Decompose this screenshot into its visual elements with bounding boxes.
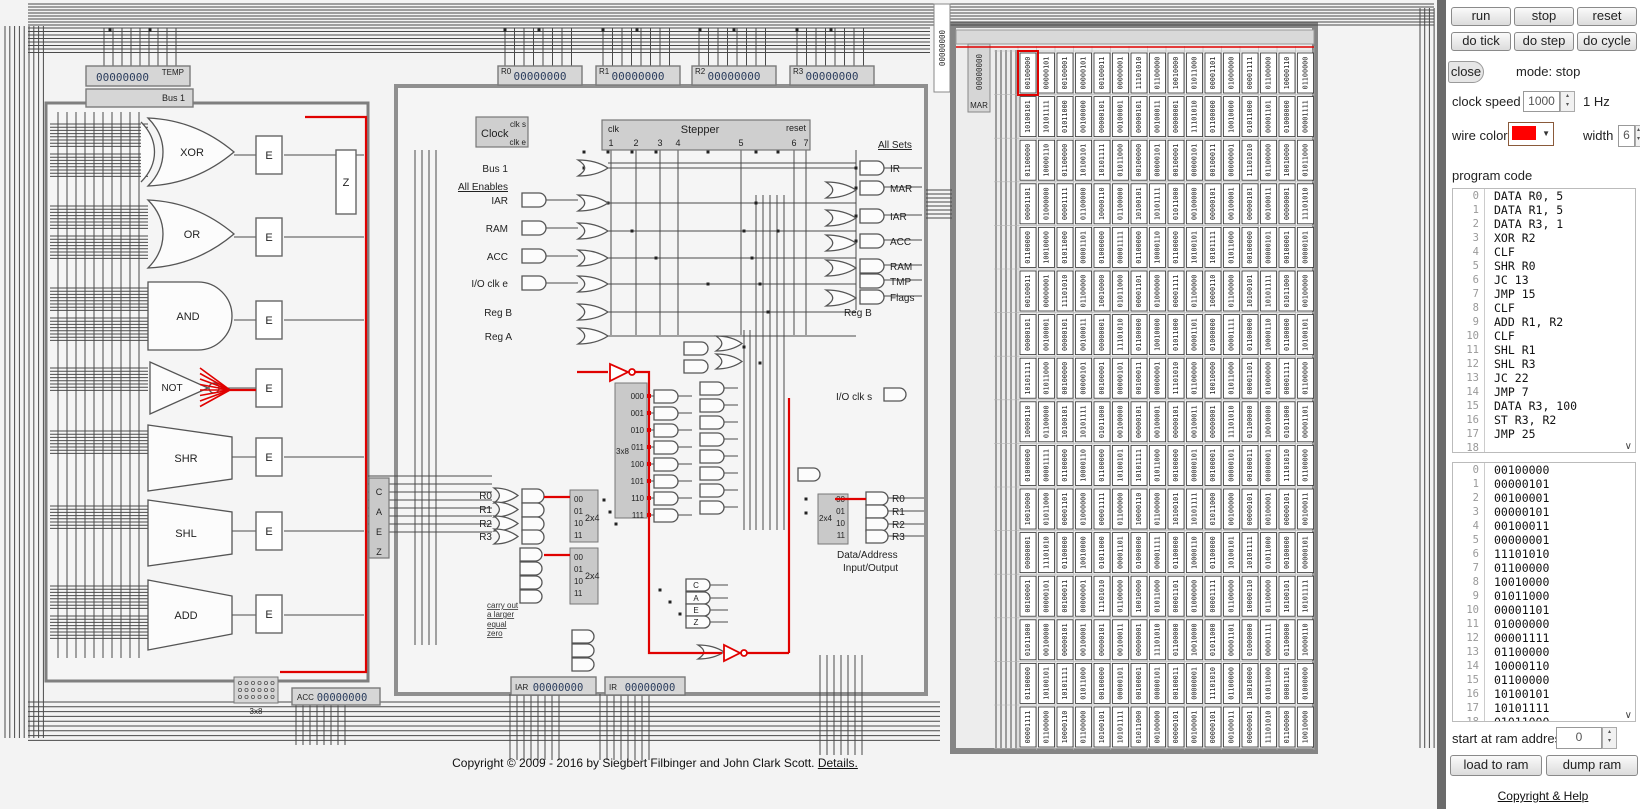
svg-text:01011000: 01011000 (1246, 100, 1254, 133)
ram-cell[interactable]: 01100000 (1076, 184, 1092, 224)
ram-cell[interactable]: 00001111 (1020, 707, 1036, 747)
ram-cell[interactable]: 11101010 (1150, 620, 1166, 660)
ram-cell[interactable]: 00000001 (1187, 663, 1203, 703)
ram-cell[interactable]: 01000000 (1020, 445, 1036, 485)
ram-cell[interactable]: 00000001 (1279, 184, 1295, 224)
ram-cell[interactable]: 00100001 (1150, 402, 1166, 442)
ram-cell[interactable]: 00000101 (1242, 184, 1258, 224)
ram-cell[interactable]: 01000000 (1076, 489, 1092, 529)
panel-divider[interactable] (1437, 0, 1446, 809)
svg-text:00000101: 00000101 (1191, 449, 1199, 482)
ram-cell[interactable]: 01100000 (1279, 315, 1295, 355)
ram-cell[interactable]: 00000101 (1298, 533, 1314, 573)
svg-text:00100001: 00100001 (1172, 144, 1180, 177)
ram-cell[interactable]: 10010000 (1020, 489, 1036, 529)
ram-cell[interactable]: 00001101 (1020, 184, 1036, 224)
ram-cell[interactable]: 00001111 (1242, 53, 1258, 93)
ram-cell[interactable]: 00000001 (1150, 358, 1166, 398)
ram-cell[interactable]: 00000101 (1039, 576, 1055, 616)
ram-cell[interactable]: 01100000 (1261, 53, 1277, 93)
ram-cell[interactable]: 00000101 (1168, 402, 1184, 442)
ram-cell[interactable]: 10010000 (1261, 402, 1277, 442)
ram-cell[interactable]: 01100000 (1020, 663, 1036, 703)
ram-cell[interactable]: 01100000 (1020, 140, 1036, 180)
ram-cell[interactable]: 00100001 (1039, 315, 1055, 355)
ram-cell[interactable]: 10101111 (1205, 227, 1221, 267)
ram-cell[interactable]: 10101111 (1298, 576, 1314, 616)
ram-cell[interactable]: 00000101 (1150, 140, 1166, 180)
ram-cell[interactable]: 10100101 (1279, 576, 1295, 616)
ram-cell[interactable]: 01100000 (1298, 358, 1314, 398)
ram-cell[interactable]: 10010000 (1224, 97, 1240, 137)
load-to-ram-button[interactable]: load to ram (1450, 755, 1542, 776)
ram-cell[interactable]: 10100101 (1298, 315, 1314, 355)
ram-cell[interactable]: 10101111 (1057, 663, 1073, 703)
ram-cell[interactable]: 01100000 (1224, 663, 1240, 703)
ram-cell[interactable]: 00000101 (1094, 97, 1110, 137)
ram-cell[interactable]: 00000101 (1094, 620, 1110, 660)
ram-cell[interactable]: 00100000 (1113, 402, 1129, 442)
line-number: 3 (1453, 505, 1485, 519)
ram-cell[interactable]: 00100011 (1168, 663, 1184, 703)
ram-cell[interactable]: 00100000 (1298, 271, 1314, 311)
ram-cell[interactable]: 00001111 (1057, 184, 1073, 224)
ram-cell[interactable]: 00100001 (1205, 445, 1221, 485)
ram-cell[interactable]: 01000000 (1131, 533, 1147, 573)
ram-cell[interactable]: 01100000 (1168, 620, 1184, 660)
ram-cell[interactable]: 11101010 (1168, 358, 1184, 398)
ram-cell[interactable]: 00100000 (1187, 184, 1203, 224)
ram-cell[interactable]: 11101010 (1094, 576, 1110, 616)
start-address-spinner[interactable]: ▴▾ (1602, 727, 1617, 749)
ram-cell[interactable]: 00001101 (1187, 315, 1203, 355)
ram-cell[interactable]: 00100011 (1094, 53, 1110, 93)
ram-cell[interactable]: 01100000 (1187, 271, 1203, 311)
ram-cell[interactable]: 01100000 (1168, 227, 1184, 267)
ram-cell[interactable]: 00100001 (1113, 97, 1129, 137)
decoder-3x8-label: 3x8 (616, 447, 629, 456)
ram-cell[interactable]: 00000101 (1242, 489, 1258, 529)
ram-cell[interactable]: 01100000 (1205, 533, 1221, 573)
ram-cell[interactable]: 00000001 (1113, 53, 1129, 93)
ram-scroll-down-icon[interactable]: ∨ (1625, 710, 1632, 721)
ram-cell[interactable]: 01011000 (1039, 489, 1055, 529)
ram-cell[interactable]: 10000110 (1150, 227, 1166, 267)
ram-cell[interactable]: 00100000 (1131, 140, 1147, 180)
svg-text:01100000: 01100000 (1265, 144, 1273, 177)
ram-cell[interactable]: 00100001 (1131, 663, 1147, 703)
ram-cell[interactable]: 00100011 (1187, 402, 1203, 442)
ram-cell[interactable]: 00000101 (1150, 663, 1166, 703)
ram-cell[interactable]: 01100000 (1057, 140, 1073, 180)
ram-cell[interactable]: 00100001 (1094, 358, 1110, 398)
program-scroll-down-icon[interactable]: ∨ (1625, 441, 1632, 452)
ram-cell[interactable]: 10000110 (1094, 184, 1110, 224)
ram-cell[interactable]: 01100000 (1057, 533, 1073, 573)
ram-cell[interactable]: 01100000 (1150, 489, 1166, 529)
ram-cell[interactable]: 00000101 (1057, 620, 1073, 660)
ram-cell[interactable]: 10010000 (1076, 533, 1092, 573)
ram-cell[interactable]: 10000110 (1076, 445, 1092, 485)
ram-cell[interactable]: 10000110 (1261, 315, 1277, 355)
do-cycle-button[interactable]: do cycle (1577, 32, 1637, 51)
do-step-button[interactable]: do step (1514, 32, 1574, 51)
ram-cell[interactable]: 00001111 (1224, 315, 1240, 355)
ram-cell[interactable]: 00100011 (1113, 620, 1129, 660)
ram-cell[interactable]: 01100000 (1094, 445, 1110, 485)
ram-cell[interactable]: 01100000 (1113, 489, 1129, 529)
reset-button[interactable]: reset (1577, 7, 1637, 26)
ram-cell[interactable]: 00000001 (1205, 402, 1221, 442)
ram-cell[interactable]: 00100001 (1168, 140, 1184, 180)
ram-cell[interactable]: 00001111 (1205, 576, 1221, 616)
ram-cell[interactable]: 10000110 (1298, 620, 1314, 660)
ram-cell[interactable]: 00001111 (1113, 227, 1129, 267)
ram-cell[interactable]: 01011000 (1205, 620, 1221, 660)
ram-cell[interactable]: 11101010 (1261, 707, 1277, 747)
ram-cell[interactable]: 01011000 (1224, 227, 1240, 267)
ram-cell[interactable]: 01011000 (1094, 402, 1110, 442)
ram-cell[interactable]: 10000110 (1187, 533, 1203, 573)
ram-cell[interactable]: 00000101 (1279, 489, 1295, 529)
ram-cell[interactable]: 00000001 (1242, 707, 1258, 747)
ram-cell[interactable]: 01100000 (1076, 271, 1092, 311)
ram-cell[interactable]: 01011000 (1279, 271, 1295, 311)
ram-cell[interactable]: 00100011 (1076, 315, 1092, 355)
ram-cell[interactable]: 10000110 (1205, 271, 1221, 311)
ram-cell[interactable]: 00100001 (1076, 620, 1092, 660)
ram-cell[interactable]: 00100000 (1039, 620, 1055, 660)
wire-color-select[interactable]: ▼ (1508, 122, 1554, 146)
ram-cell[interactable]: 10010000 (1205, 358, 1221, 398)
ram-cell[interactable]: 10000110 (1242, 576, 1258, 616)
ram-cell[interactable]: 01000000 (1187, 576, 1203, 616)
ram-cell[interactable]: 01100000 (1131, 227, 1147, 267)
ram-cell[interactable]: 00000101 (1076, 53, 1092, 93)
ram-cell[interactable]: 00100001 (1279, 227, 1295, 267)
ram-cell[interactable]: 01000000 (1094, 227, 1110, 267)
ram-row: 000100000 (1453, 463, 1635, 477)
program-code-label: program code (1452, 168, 1532, 183)
ram-cell[interactable]: 10000110 (1020, 402, 1036, 442)
ram-cell[interactable]: 00100011 (1150, 97, 1166, 137)
ram-cell[interactable]: 10100101 (1187, 227, 1203, 267)
ram-cell[interactable]: 00000101 (1076, 358, 1092, 398)
ram-cell[interactable]: 10101111 (1113, 707, 1129, 747)
ram-cell[interactable]: 01100000 (1298, 53, 1314, 93)
ram-cell[interactable]: 01011000 (1168, 184, 1184, 224)
ram-cell[interactable]: 10101111 (1020, 358, 1036, 398)
ram-cell[interactable]: 00100000 (1150, 707, 1166, 747)
ram-cell[interactable]: 10100101 (1131, 184, 1147, 224)
ram-cell[interactable]: 10101111 (1076, 402, 1092, 442)
ram-cell[interactable]: 00000101 (1205, 184, 1221, 224)
ram-cell[interactable]: 00100011 (1261, 184, 1277, 224)
ram-cell[interactable]: 10100101 (1020, 97, 1036, 137)
ram-cell[interactable]: 01000000 (1261, 358, 1277, 398)
ram-cell[interactable]: 01100000 (1039, 402, 1055, 442)
ram-cell[interactable]: 01100000 (1168, 533, 1184, 573)
ram-cell[interactable]: 00001111 (1039, 445, 1055, 485)
ram-cell[interactable]: 01011000 (1113, 271, 1129, 311)
ram-cell[interactable]: 00000001 (1020, 533, 1036, 573)
ram-cell[interactable]: 11101010 (1279, 445, 1295, 485)
ram-cell[interactable]: 10010000 (1279, 140, 1295, 180)
ram-cell[interactable]: 00100001 (1020, 576, 1036, 616)
do-tick-button[interactable]: do tick (1451, 32, 1511, 51)
ram-cell[interactable]: 00000001 (1168, 97, 1184, 137)
ram-cell[interactable]: 00100000 (1168, 445, 1184, 485)
ram-cell[interactable]: 00001111 (1150, 533, 1166, 573)
ram-cell[interactable]: 01100000 (1224, 576, 1240, 616)
ram-cell[interactable]: 01000000 (1242, 620, 1258, 660)
ram-cell[interactable]: 01011000 (1020, 620, 1036, 660)
flags-register: CAEZ (369, 478, 389, 558)
ram-cell[interactable]: 10010000 (1242, 663, 1258, 703)
wire-width-spinner[interactable]: ▴▾ (1635, 125, 1640, 147)
svg-text:10000110: 10000110 (1135, 493, 1143, 526)
ram-cell[interactable]: 10101111 (1039, 97, 1055, 137)
ram-cell[interactable]: 01100000 (1279, 707, 1295, 747)
ram-cell[interactable]: 01011000 (1150, 445, 1166, 485)
ram-cell[interactable]: 00000001 (1224, 140, 1240, 180)
ram-cell[interactable]: 00100000 (1057, 358, 1073, 398)
svg-text:00000001: 00000001 (1024, 536, 1032, 569)
ram-cell[interactable]: 10101111 (1242, 533, 1258, 573)
ram-cell[interactable]: 11101010 (1039, 533, 1055, 573)
ram-cell[interactable]: 00100011 (1224, 707, 1240, 747)
ram-cell[interactable]: 10100101 (1039, 663, 1055, 703)
ram-cell[interactable]: 10100101 (1224, 533, 1240, 573)
ram-cell[interactable]: 01011000 (1168, 315, 1184, 355)
ram-cell[interactable]: 00001101 (1131, 271, 1147, 311)
ram-cell[interactable]: 00100011 (1242, 445, 1258, 485)
ram-cell[interactable]: 01100000 (1113, 576, 1129, 616)
ram-cell[interactable]: 00001101 (1205, 53, 1221, 93)
ram-cell[interactable]: 00100000 (1094, 663, 1110, 703)
ram-cell[interactable]: 00001101 (1261, 97, 1277, 137)
ram-cell[interactable]: 01100000 (1150, 53, 1166, 93)
ram-cell[interactable]: 00000101 (1224, 445, 1240, 485)
ram-cell[interactable]: 01100000 (1224, 271, 1240, 311)
ram-cell[interactable]: 10101111 (1187, 489, 1203, 529)
ram-cell[interactable]: 00000101 (1168, 707, 1184, 747)
ram-cell[interactable]: 00000101 (1187, 140, 1203, 180)
details-link[interactable]: Details. (818, 756, 858, 770)
ram-cell[interactable]: 01011000 (1205, 489, 1221, 529)
ram-cell[interactable]: 00100001 (1187, 707, 1203, 747)
ram-cell[interactable]: 00000101 (1131, 97, 1147, 137)
ram-cell[interactable]: 00001111 (1168, 271, 1184, 311)
ram-cell[interactable]: 00100001 (1224, 184, 1240, 224)
ram-cell[interactable]: 00100011 (1205, 140, 1221, 180)
ram-cell[interactable]: 01100000 (1076, 707, 1092, 747)
ram-cell[interactable]: 10010000 (1150, 315, 1166, 355)
ram-cell[interactable]: 01100000 (1113, 184, 1129, 224)
ram-cell[interactable]: 00100011 (1298, 489, 1314, 529)
ram-cell[interactable]: 01100000 (1057, 445, 1073, 485)
ram-cell[interactable]: 00100001 (1057, 53, 1073, 93)
ram-cell[interactable]: 01100000 (1279, 620, 1295, 660)
ram-cell[interactable]: 01000000 (1279, 97, 1295, 137)
ram-cell[interactable]: 00100011 (1131, 358, 1147, 398)
ram-cell[interactable]: 01011000 (1057, 97, 1073, 137)
ram-cell[interactable]: 01011000 (1298, 140, 1314, 180)
ram-cell[interactable]: 00100000 (1279, 533, 1295, 573)
ram-cell[interactable]: 01011000 (1113, 140, 1129, 180)
ram-cell[interactable]: 00000101 (1039, 53, 1055, 93)
ram-cell[interactable]: 10100101 (1094, 707, 1110, 747)
ram-cell[interactable]: 01100000 (1242, 402, 1258, 442)
dump-ram-button[interactable]: dump ram (1546, 755, 1638, 776)
ram-cell[interactable]: 01100000 (1020, 227, 1036, 267)
ram-cell[interactable]: 10010000 (1298, 707, 1314, 747)
ram-cell[interactable]: 01100000 (1261, 140, 1277, 180)
ram-cell[interactable]: 11101010 (1131, 53, 1147, 93)
svg-text:00001101: 00001101 (1061, 493, 1069, 526)
clock-speed-spinner[interactable]: ▴▾ (1560, 91, 1575, 112)
svg-text:01000000: 01000000 (1209, 318, 1217, 351)
svg-text:10010000: 10010000 (1228, 100, 1236, 133)
ram-cell[interactable]: 01011000 (1094, 533, 1110, 573)
ram-cell[interactable]: 00001101 (1298, 402, 1314, 442)
ram-cell[interactable]: 11101010 (1298, 184, 1314, 224)
ram-cell[interactable]: 00100000 (1020, 53, 1036, 93)
ram-cell[interactable]: 00100000 (1224, 489, 1240, 529)
ram-cell[interactable]: 01100000 (1205, 97, 1221, 137)
ram-cell[interactable]: 00000101 (1205, 707, 1221, 747)
ram-cell[interactable]: 00001101 (1076, 227, 1092, 267)
ram-cell[interactable]: 01011000 (1057, 227, 1073, 267)
ram-cell[interactable]: 10000110 (1279, 53, 1295, 93)
ram-cell[interactable]: 01000000 (1150, 271, 1166, 311)
ram-cell[interactable]: 10010000 (1131, 576, 1147, 616)
ram-cell[interactable]: 10010000 (1187, 620, 1203, 660)
ram-cell[interactable]: 11101010 (1187, 97, 1203, 137)
ram-cell[interactable]: 01011000 (1261, 663, 1277, 703)
ram-cell[interactable]: 00000001 (1131, 620, 1147, 660)
ram-cell[interactable]: 11101010 (1224, 402, 1240, 442)
ram-cell[interactable]: 10100101 (1113, 445, 1129, 485)
ram-cell[interactable]: 01011000 (1224, 358, 1240, 398)
ram-cell[interactable]: 01100000 (1039, 707, 1055, 747)
ram-cell[interactable]: 10010000 (1039, 227, 1055, 267)
ram-cell[interactable]: 01011000 (1131, 707, 1147, 747)
ram-cell[interactable]: 00001111 (1094, 489, 1110, 529)
ram-cell[interactable]: 00000101 (1057, 315, 1073, 355)
run-button[interactable]: run (1451, 7, 1511, 26)
ram-cell[interactable]: 00000101 (1113, 663, 1129, 703)
ram-cell[interactable]: 11101010 (1205, 663, 1221, 703)
ram-cell[interactable]: 10101111 (1261, 271, 1277, 311)
ram-cell[interactable]: 10100101 (1076, 140, 1092, 180)
ram-cell[interactable]: 00000001 (1076, 576, 1092, 616)
clock-speed-input[interactable]: 1000 (1523, 91, 1560, 112)
ram-cell[interactable]: 10000110 (1131, 489, 1147, 529)
svg-text:10000110: 10000110 (1302, 623, 1310, 656)
ram-cell[interactable]: 00100001 (1261, 489, 1277, 529)
ram-cell[interactable]: 01100000 (1187, 358, 1203, 398)
ram-cell[interactable]: 00000101 (1298, 227, 1314, 267)
ram-cell[interactable]: 10010000 (1168, 53, 1184, 93)
ram-cell[interactable]: 10101111 (1131, 445, 1147, 485)
ram-cell[interactable]: 10000110 (1057, 707, 1073, 747)
r0-value: 00000000 (514, 70, 567, 83)
ram-cell[interactable]: 10101111 (1094, 140, 1110, 180)
ram-cell[interactable]: 00000001 (1039, 271, 1055, 311)
ram-cell[interactable]: 00000001 (1261, 445, 1277, 485)
ram-cell[interactable]: 00001111 (1298, 97, 1314, 137)
ram-cell[interactable]: 00001101 (1224, 620, 1240, 660)
ram-cell[interactable]: 10100101 (1168, 489, 1184, 529)
ram-cell[interactable]: 01100000 (1242, 315, 1258, 355)
ram-cell[interactable]: 01011000 (1039, 358, 1055, 398)
ram-cell[interactable]: 00001101 (1113, 533, 1129, 573)
ram-cell[interactable]: 11101010 (1242, 140, 1258, 180)
ram-cell[interactable]: 01011000 (1187, 53, 1203, 93)
ram-cell[interactable]: 00001101 (1279, 663, 1295, 703)
ram-cell[interactable]: 01100000 (1298, 445, 1314, 485)
ram-cell[interactable]: 01011000 (1150, 576, 1166, 616)
svg-text:00100011: 00100011 (1080, 318, 1088, 351)
ram-cell[interactable]: 11101010 (1057, 271, 1073, 311)
ram-cell[interactable]: 01100000 (1131, 315, 1147, 355)
wire-width-input[interactable]: 6 (1618, 125, 1635, 147)
svg-text:01100000: 01100000 (1080, 187, 1088, 220)
ram-cell[interactable]: 00000101 (1020, 315, 1036, 355)
close-button[interactable]: close (1448, 61, 1484, 83)
start-address-input[interactable]: 0 (1556, 727, 1602, 749)
ram-cell[interactable]: 00001101 (1168, 576, 1184, 616)
program-row: 11SHL R1 (1453, 343, 1635, 357)
ram-cell[interactable]: 01011000 (1279, 402, 1295, 442)
ram-cell[interactable]: 00100011 (1057, 576, 1073, 616)
ram-cell[interactable]: 01100000 (1261, 576, 1277, 616)
ram-cell[interactable]: 01000000 (1039, 184, 1055, 224)
ram-cell[interactable]: 10010000 (1094, 271, 1110, 311)
ram-cell[interactable]: 01000000 (1205, 315, 1221, 355)
stop-button[interactable]: stop (1514, 7, 1574, 26)
ram-values-list[interactable]: 0001000001000001012001000013000001014001… (1452, 462, 1636, 722)
ram-cell[interactable]: 11101010 (1113, 315, 1129, 355)
ram-cell[interactable]: 10100101 (1242, 271, 1258, 311)
ram-cell[interactable]: 00100011 (1020, 271, 1036, 311)
ram-cell[interactable]: 00100000 (1242, 227, 1258, 267)
ram-cell[interactable]: 01011000 (1261, 533, 1277, 573)
ram-cell[interactable]: 01011000 (1076, 663, 1092, 703)
ram-cell[interactable]: 10101111 (1150, 184, 1166, 224)
ram-cell[interactable]: 10000110 (1039, 140, 1055, 180)
svg-text:00000001: 00000001 (1191, 667, 1199, 700)
ram-cell[interactable]: 00000001 (1094, 315, 1110, 355)
svg-text:00100001: 00100001 (1061, 57, 1069, 90)
ram-cell[interactable]: 00000101 (1187, 445, 1203, 485)
ram-cell[interactable]: 00000101 (1113, 358, 1129, 398)
ram-cell[interactable]: 00001101 (1057, 489, 1073, 529)
program-code-list[interactable]: 0DATA R0, 51DATA R1, 52DATA R3, 13XOR R2… (1452, 188, 1636, 453)
ram-cell[interactable]: 00000101 (1261, 227, 1277, 267)
ram-cell[interactable]: 01000000 (1224, 53, 1240, 93)
ram-cell[interactable]: 00100000 (1076, 97, 1092, 137)
copyright-help-link[interactable]: Copyright & Help (1498, 789, 1589, 803)
ram-cell[interactable]: 01011000 (1242, 97, 1258, 137)
ram-cell[interactable]: 00001101 (1242, 358, 1258, 398)
ram-cell[interactable]: 00001111 (1261, 620, 1277, 660)
ram-cell[interactable]: 10100101 (1057, 402, 1073, 442)
ram-cell[interactable]: 01000000 (1298, 663, 1314, 703)
ram-cell[interactable]: 00001111 (1279, 358, 1295, 398)
ram-cell[interactable]: 00000101 (1131, 402, 1147, 442)
